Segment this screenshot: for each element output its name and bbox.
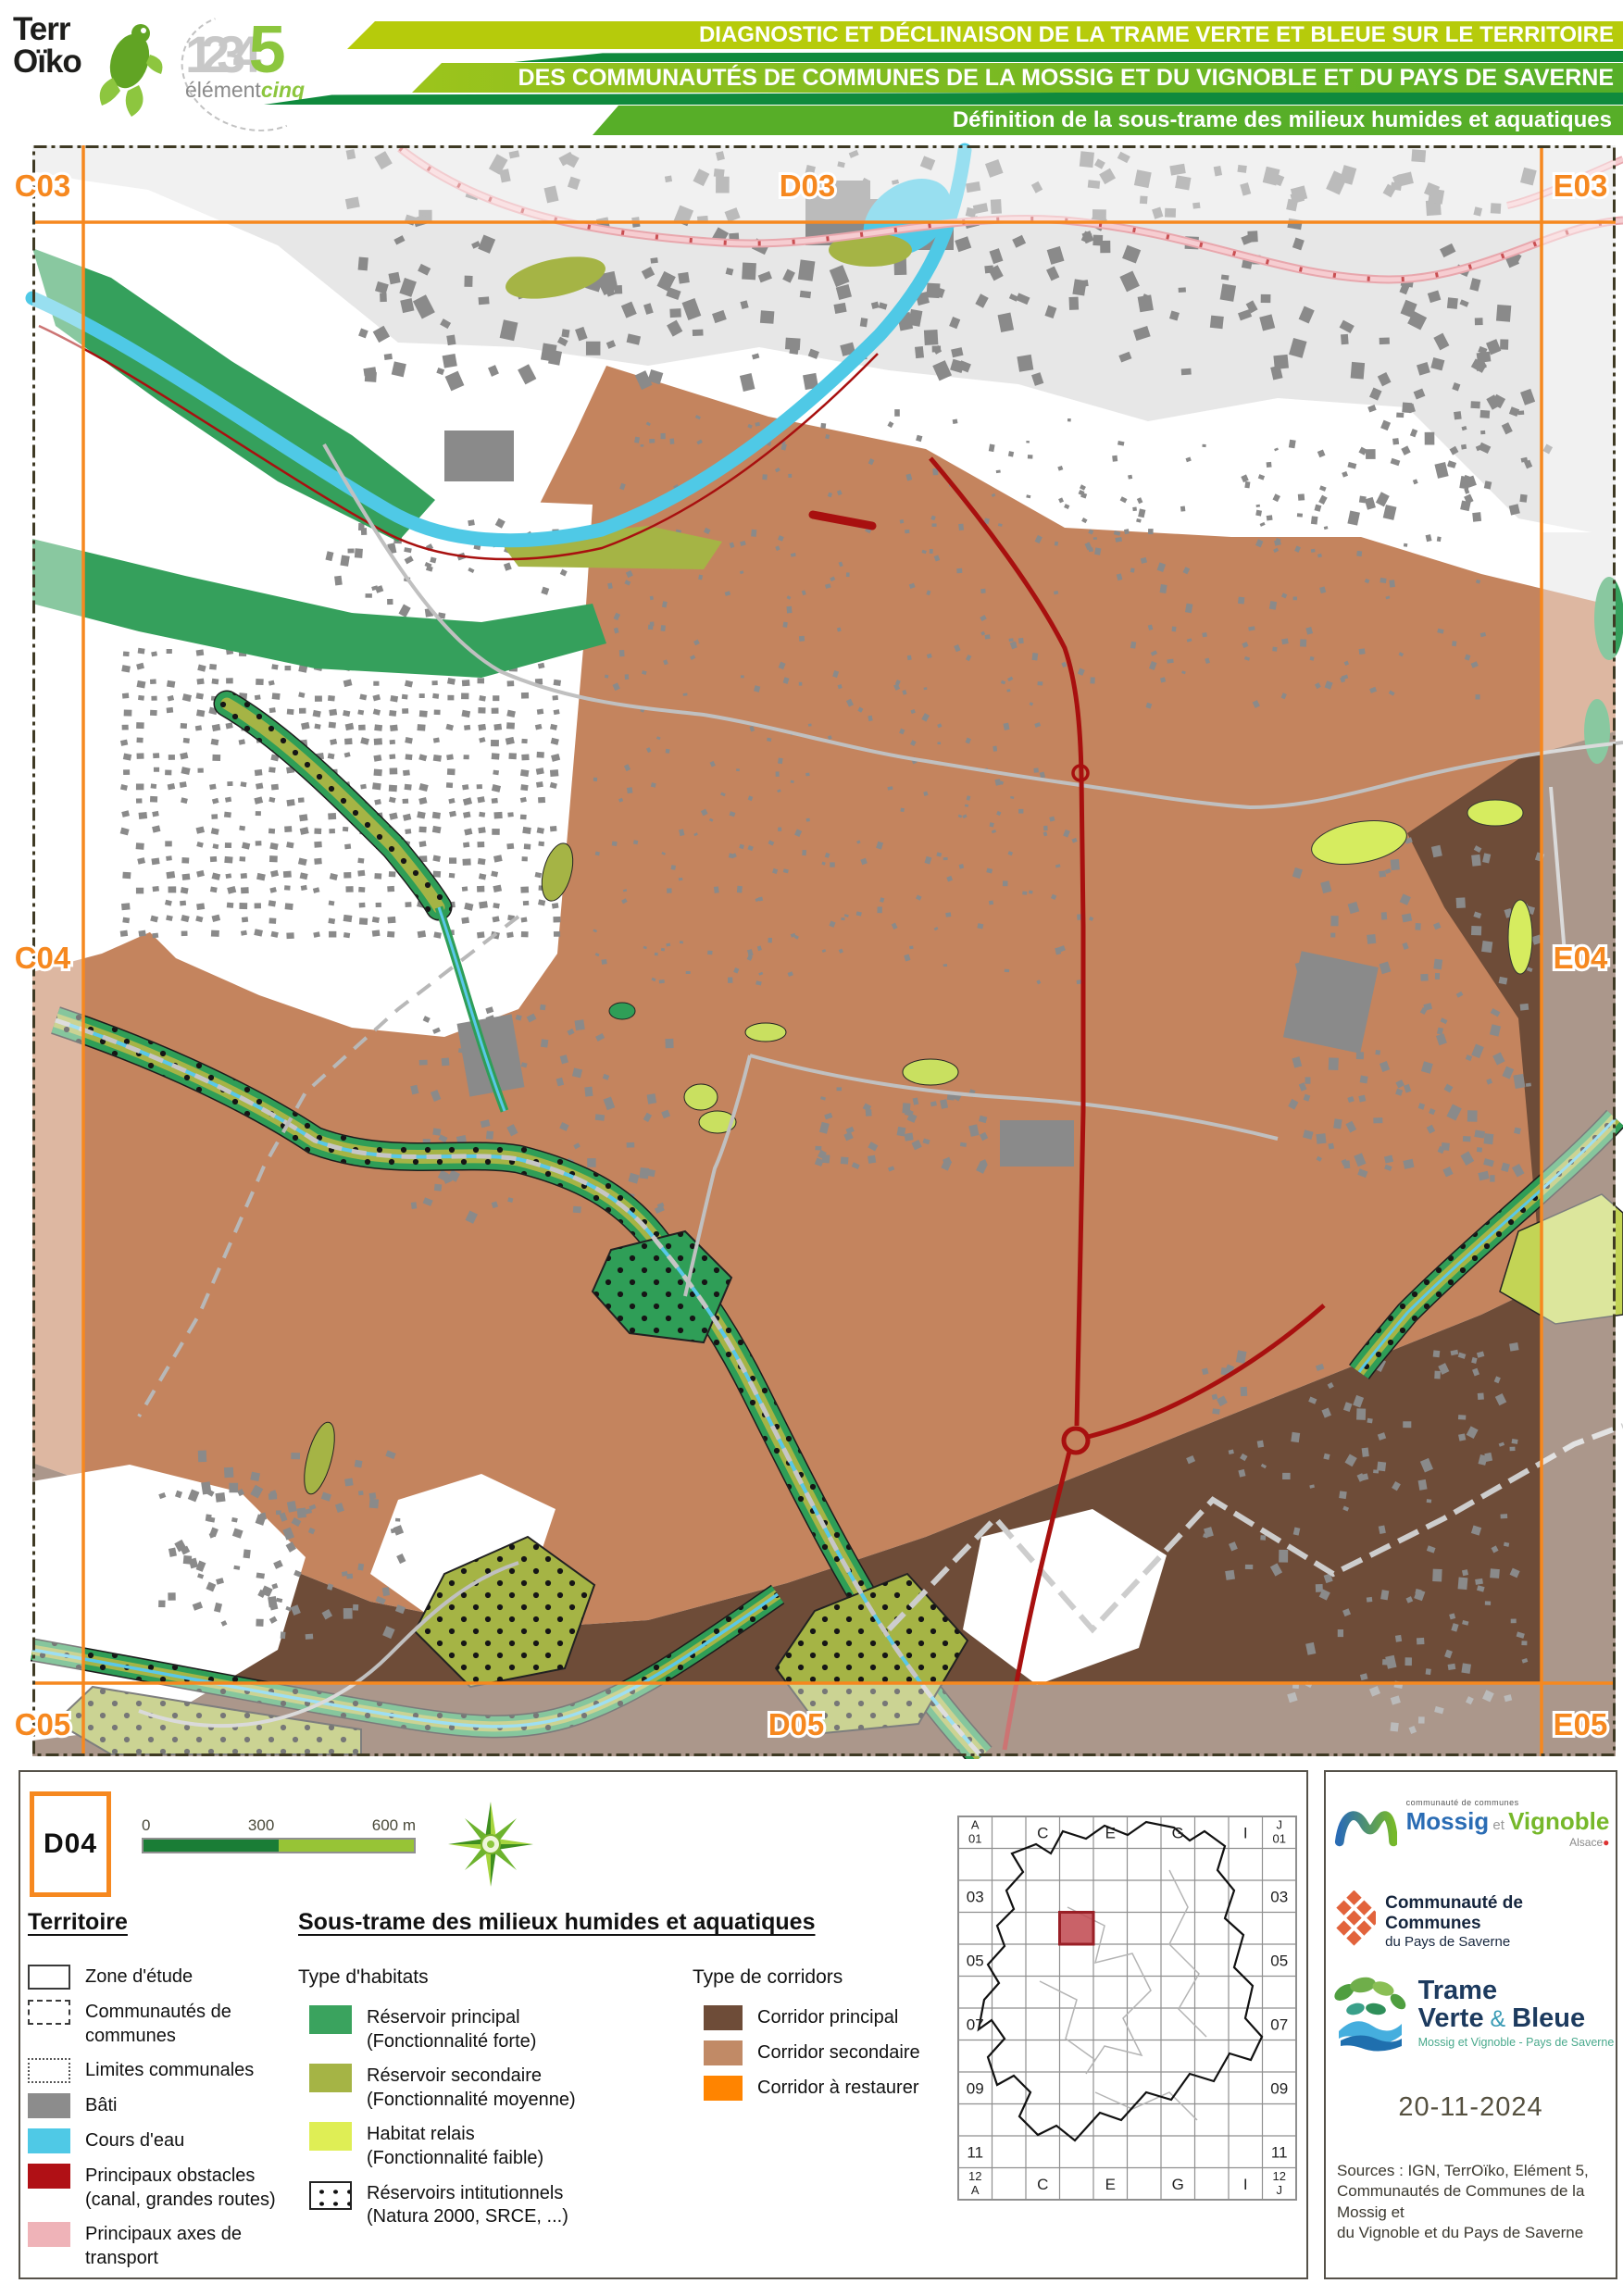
overview-label: 11 xyxy=(967,2143,983,2161)
corridors-legend-list: Corridor principalCorridor secondaireCor… xyxy=(704,2005,963,2111)
overview-label: 09 xyxy=(967,2079,984,2097)
legend-item: Principaux axes de transport xyxy=(28,2222,282,2270)
legend-swatch-transport xyxy=(28,2222,70,2247)
territoire-title: Territoire xyxy=(28,1909,128,1936)
habitats-legend-list: Réservoir principal(Fonctionnalité forte… xyxy=(309,2005,587,2240)
mossig-vignoble-logo: communauté de communes Mossig et Vignobl… xyxy=(1326,1798,1616,1849)
mossig-region: Alsace● xyxy=(1406,1836,1610,1849)
legend-swatch-habitat_relais xyxy=(309,2122,352,2151)
corridors-subtitle: Type de corridors xyxy=(693,1966,843,1989)
legend-panel: D04 0 300 600 m Territoire Sous-trame de… xyxy=(19,1770,1308,2279)
overview-label: G xyxy=(1172,1824,1184,1841)
trame-verte-bleue-logo: Trame Verte & Bleue Mossig et Vignoble -… xyxy=(1326,1974,1616,2052)
tvb-title-2: Verte & Bleue xyxy=(1418,2004,1615,2032)
tvb-paw-icon xyxy=(1328,1974,1409,2052)
legend-swatch-corridor_secondaire xyxy=(704,2040,743,2065)
scale-tick-0: 0 xyxy=(142,1816,150,1835)
legend-label: Bâti xyxy=(85,2093,117,2118)
overview-label: 03 xyxy=(1270,1888,1288,1905)
overview-label: C xyxy=(1037,1824,1048,1841)
overview-highlight-cell xyxy=(1060,1913,1094,1945)
legend-swatch-corridor_principal xyxy=(704,2005,743,2030)
map-date: 20-11-2024 xyxy=(1326,2092,1616,2123)
grid-label-D05: D05 xyxy=(768,1707,825,1741)
scale-bar: 0 300 600 m xyxy=(142,1816,416,1853)
legend-label: Principaux obstacles(canal, grandes rout… xyxy=(85,2164,276,2212)
legend-swatch-bati xyxy=(28,2093,70,2118)
grid-label-E05: E05 xyxy=(1554,1707,1608,1741)
scale-tick-600: 600 m xyxy=(372,1816,416,1835)
grid-label-C04: C04 xyxy=(15,941,71,975)
overview-label: G xyxy=(1172,2176,1184,2193)
legend-label: Limites communales xyxy=(85,2058,254,2083)
grid-label-C05: C05 xyxy=(15,1707,71,1741)
legend-label: Réservoir principal(Fonctionnalité forte… xyxy=(367,2005,536,2053)
overview-label: 09 xyxy=(1270,2079,1288,2097)
pays-saverne-logo: Communauté de Communes du Pays de Savern… xyxy=(1326,1890,1616,1952)
legend-label: Zone d'étude xyxy=(85,1965,193,1990)
legend-item: Communautés decommunes xyxy=(28,2000,282,2048)
tile-id-box: D04 xyxy=(30,1791,111,1897)
legend-item: Limites communales xyxy=(28,2058,282,2083)
legend-item: Habitat relais(Fonctionnalité faible) xyxy=(309,2122,587,2170)
mossig-name: Mossig et Vignoble xyxy=(1406,1807,1610,1836)
legend-swatch-reservoir_secondaire xyxy=(309,2064,352,2092)
tvb-title-1: Trame xyxy=(1418,1977,1615,2004)
legend-item: Corridor principal xyxy=(704,2005,963,2030)
legend-item: Principaux obstacles(canal, grandes rout… xyxy=(28,2164,282,2212)
legend-label: Corridor principal xyxy=(757,2005,898,2030)
overview-label: 03 xyxy=(967,1888,984,1905)
legend-item: Réservoirs intitutionnels(Natura 2000, S… xyxy=(309,2181,587,2229)
map-canvas: C03D03E03C04E04C05D05E05 xyxy=(0,137,1623,1759)
legend-label: Corridor secondaire xyxy=(757,2040,920,2065)
legend-item: Bâti xyxy=(28,2093,282,2118)
legend-item: Réservoir secondaire(Fonctionnalité moye… xyxy=(309,2064,587,2112)
legend-swatch-corridor_restaurer xyxy=(704,2076,743,2101)
legend-label: Cours d'eau xyxy=(85,2128,184,2153)
legend-label: Corridor à restaurer xyxy=(757,2076,919,2101)
title-banner-1: DIAGNOSTIC ET DÉCLINAISON DE LA TRAME VE… xyxy=(347,21,1623,49)
tvb-subtitle: Mossig et Vignoble - Pays de Saverne xyxy=(1418,2036,1615,2049)
legend-swatch-dotted xyxy=(28,2058,70,2083)
legend-label: Communautés decommunes xyxy=(85,2000,231,2048)
legend-swatch-obstacle xyxy=(28,2164,70,2189)
terroiko-logo: Terr Oïko xyxy=(13,13,170,124)
legend-item: Corridor secondaire xyxy=(704,2040,963,2065)
overview-label: C xyxy=(1037,2176,1048,2193)
overview-label: E xyxy=(1105,2176,1116,2193)
overview-label: 07 xyxy=(1270,2015,1288,2033)
saverne-name-2: du Pays de Saverne xyxy=(1385,1934,1616,1950)
legend-swatch-outline xyxy=(28,1965,70,1990)
saverne-name-1: Communauté de Communes xyxy=(1385,1893,1616,1934)
legend-swatch-dots xyxy=(309,2181,352,2210)
overview-label: 11 xyxy=(1271,2143,1288,2161)
grid-label-C03: C03 xyxy=(15,168,71,203)
legend-label: Réservoir secondaire(Fonctionnalité moye… xyxy=(367,2064,576,2112)
subtitle-banner: Définition de la sous-trame des milieux … xyxy=(593,106,1623,135)
legend-item: Cours d'eau xyxy=(28,2128,282,2153)
banner-streak xyxy=(514,51,1623,62)
saverne-diamonds-icon xyxy=(1326,1890,1376,1952)
legend-label: Habitat relais(Fonctionnalité faible) xyxy=(367,2122,543,2170)
element5-logo: 12345 élémentcinq xyxy=(185,17,352,126)
overview-label: E xyxy=(1105,1824,1116,1841)
logos-panel: communauté de communes Mossig et Vignobl… xyxy=(1324,1770,1617,2279)
legend-swatch-reservoir_principal xyxy=(309,2005,352,2034)
legend-item: Réservoir principal(Fonctionnalité forte… xyxy=(309,2005,587,2053)
overview-label: I xyxy=(1243,1824,1248,1841)
title-banner-2: DES COMMUNAUTÉS DE COMMUNES DE LA MOSSIG… xyxy=(412,63,1623,93)
legend-swatch-cours_eau xyxy=(28,2128,70,2153)
legend-item: Zone d'étude xyxy=(28,1965,282,1990)
mossig-small-text: communauté de communes xyxy=(1406,1798,1610,1807)
header: Terr Oïko 12345 élémentcinq DIAGNOSTIC E… xyxy=(0,0,1623,137)
grid-label-E04: E04 xyxy=(1554,941,1608,975)
habitats-subtitle: Type d'habitats xyxy=(298,1966,429,1989)
banner-streak xyxy=(264,91,1623,105)
overview-label: 05 xyxy=(967,1952,984,1969)
territoire-legend-list: Zone d'étudeCommunautés decommunesLimite… xyxy=(28,1965,282,2281)
scale-tick-300: 300 xyxy=(248,1816,274,1835)
overview-label: 07 xyxy=(967,2015,984,2033)
overview-label: 05 xyxy=(1270,1952,1288,1969)
legend-swatch-dashed xyxy=(28,2000,70,2025)
legend-item: Corridor à restaurer xyxy=(704,2076,963,2101)
compass-rose-icon xyxy=(446,1800,535,1889)
overview-map: A01J0112A12J03030505070709091111CCEEGGII xyxy=(956,1815,1298,2202)
overview-label: I xyxy=(1243,2176,1248,2193)
soustrame-title: Sous-trame des milieux humides et aquati… xyxy=(298,1909,815,1936)
mossig-swoosh-icon xyxy=(1332,1800,1397,1848)
grid-label-D03: D03 xyxy=(780,168,836,203)
legend-label: Principaux axes de transport xyxy=(85,2222,282,2270)
sources-text: Sources : IGN, TerrOïko, Elément 5, Comm… xyxy=(1337,2161,1607,2244)
grid-label-E03: E03 xyxy=(1554,168,1608,203)
frog-icon xyxy=(85,13,169,124)
legend-label: Réservoirs intitutionnels(Natura 2000, S… xyxy=(367,2181,568,2229)
